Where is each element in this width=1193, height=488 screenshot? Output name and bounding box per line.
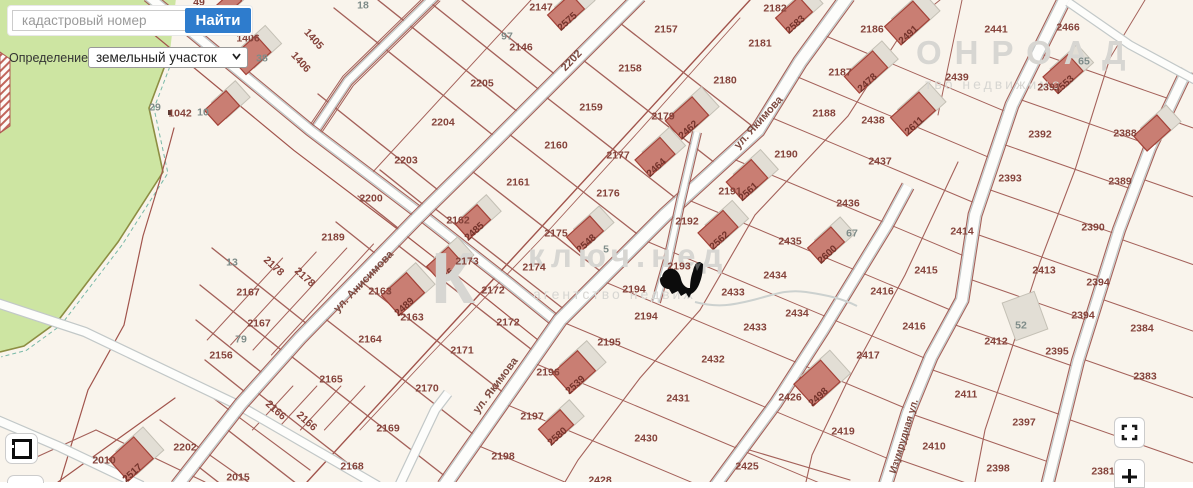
svg-text:38: 38 xyxy=(256,53,268,65)
svg-text:2388: 2388 xyxy=(1113,128,1137,140)
svg-text:2170: 2170 xyxy=(415,383,439,395)
svg-text:2436: 2436 xyxy=(836,198,860,210)
svg-text:2147: 2147 xyxy=(529,2,553,14)
svg-text:2415: 2415 xyxy=(914,265,938,277)
svg-text:2395: 2395 xyxy=(1045,346,1069,358)
svg-text:2412: 2412 xyxy=(984,336,1008,348)
svg-text:29: 29 xyxy=(149,102,161,114)
svg-text:2159: 2159 xyxy=(579,102,603,114)
svg-text:67: 67 xyxy=(846,228,858,240)
svg-text:2428: 2428 xyxy=(588,475,612,483)
svg-text:2430: 2430 xyxy=(634,433,658,445)
svg-text:2384: 2384 xyxy=(1130,323,1154,335)
svg-text:2198: 2198 xyxy=(491,451,515,463)
svg-text:2182: 2182 xyxy=(763,3,787,15)
svg-text:2431: 2431 xyxy=(666,393,690,405)
svg-text:2172: 2172 xyxy=(481,285,505,297)
svg-text:2176: 2176 xyxy=(596,188,620,200)
svg-text:2010: 2010 xyxy=(92,455,116,467)
svg-text:2390: 2390 xyxy=(1081,222,1105,234)
svg-text:1042: 1042 xyxy=(168,108,192,120)
svg-text:2205: 2205 xyxy=(470,78,494,90)
svg-text:2394: 2394 xyxy=(1071,310,1095,322)
svg-text:2158: 2158 xyxy=(618,63,642,75)
svg-text:2163: 2163 xyxy=(368,286,392,298)
svg-text:2425: 2425 xyxy=(735,461,759,473)
svg-text:2167: 2167 xyxy=(236,287,260,299)
svg-text:2188: 2188 xyxy=(812,108,836,120)
svg-text:2203: 2203 xyxy=(394,155,418,167)
svg-text:2200: 2200 xyxy=(359,193,383,205)
svg-text:2191: 2191 xyxy=(718,186,742,198)
svg-text:2161: 2161 xyxy=(506,177,530,189)
svg-text:2414: 2414 xyxy=(950,226,974,238)
svg-text:2381: 2381 xyxy=(1091,466,1115,478)
svg-text:2157: 2157 xyxy=(654,24,678,36)
svg-text:2433: 2433 xyxy=(721,287,745,299)
svg-text:2167: 2167 xyxy=(247,318,271,330)
svg-text:2391: 2391 xyxy=(1037,82,1061,94)
svg-text:65: 65 xyxy=(1078,56,1090,68)
svg-text:2416: 2416 xyxy=(902,321,926,333)
svg-text:2189: 2189 xyxy=(321,232,345,244)
svg-text:2195: 2195 xyxy=(597,337,621,349)
svg-text:2164: 2164 xyxy=(358,334,382,346)
svg-text:2433: 2433 xyxy=(743,322,767,334)
svg-text:2389: 2389 xyxy=(1108,176,1132,188)
svg-text:2190: 2190 xyxy=(774,149,798,161)
svg-text:2437: 2437 xyxy=(868,156,892,168)
svg-text:2163: 2163 xyxy=(400,312,424,324)
svg-text:2162: 2162 xyxy=(446,215,470,227)
svg-text:2434: 2434 xyxy=(763,270,787,282)
svg-text:2169: 2169 xyxy=(376,423,400,435)
svg-text:2410: 2410 xyxy=(922,441,946,453)
svg-text:2413: 2413 xyxy=(1032,265,1056,277)
svg-text:2416: 2416 xyxy=(870,286,894,298)
svg-text:2156: 2156 xyxy=(209,350,233,362)
svg-text:К: К xyxy=(431,239,476,319)
svg-text:2426: 2426 xyxy=(778,392,802,404)
svg-text:2204: 2204 xyxy=(431,117,455,129)
svg-text:2177: 2177 xyxy=(606,150,630,162)
svg-text:2160: 2160 xyxy=(544,140,568,152)
svg-text:2194: 2194 xyxy=(622,284,646,296)
svg-text:2015: 2015 xyxy=(226,472,250,483)
svg-text:2435: 2435 xyxy=(778,236,802,248)
svg-text:2186: 2186 xyxy=(860,24,884,36)
svg-text:2419: 2419 xyxy=(831,426,855,438)
svg-text:2392: 2392 xyxy=(1028,129,1052,141)
svg-text:2174: 2174 xyxy=(522,262,546,274)
svg-text:2411: 2411 xyxy=(955,389,978,401)
svg-text:2397: 2397 xyxy=(1012,417,1036,429)
svg-text:2173: 2173 xyxy=(455,256,479,268)
svg-text:2394: 2394 xyxy=(1086,277,1110,289)
svg-text:2432: 2432 xyxy=(701,354,725,366)
svg-text:2438: 2438 xyxy=(861,115,885,127)
svg-text:2466: 2466 xyxy=(1056,22,1080,34)
svg-text:2197: 2197 xyxy=(520,411,544,423)
svg-text:2165: 2165 xyxy=(319,374,343,386)
svg-text:2146: 2146 xyxy=(509,42,533,54)
svg-text:2383: 2383 xyxy=(1133,371,1157,383)
svg-text:ОНРОАД: ОНРОАД xyxy=(916,34,1139,71)
svg-text:2196: 2196 xyxy=(536,367,560,379)
svg-text:13: 13 xyxy=(226,257,238,269)
svg-text:2192: 2192 xyxy=(675,216,699,228)
svg-text:2181: 2181 xyxy=(748,38,772,50)
svg-text:2434: 2434 xyxy=(785,308,809,320)
svg-text:2180: 2180 xyxy=(713,75,737,87)
svg-text:2171: 2171 xyxy=(450,345,474,357)
svg-text:2202: 2202 xyxy=(173,442,197,454)
svg-text:2194: 2194 xyxy=(634,311,658,323)
svg-text:2168: 2168 xyxy=(340,461,364,473)
svg-text:2175: 2175 xyxy=(544,228,568,240)
svg-text:2398: 2398 xyxy=(986,463,1010,475)
svg-text:18: 18 xyxy=(357,0,369,12)
svg-text:2179: 2179 xyxy=(651,111,675,123)
svg-text:2417: 2417 xyxy=(856,350,880,362)
svg-text:10: 10 xyxy=(197,107,209,119)
svg-text:2439: 2439 xyxy=(945,72,969,84)
svg-text:79: 79 xyxy=(235,334,247,346)
svg-text:5: 5 xyxy=(603,244,609,256)
svg-text:2187: 2187 xyxy=(828,67,852,79)
svg-text:2172: 2172 xyxy=(496,317,520,329)
svg-text:52: 52 xyxy=(1015,320,1027,332)
svg-text:2393: 2393 xyxy=(998,173,1022,185)
svg-text:2441: 2441 xyxy=(984,24,1008,36)
